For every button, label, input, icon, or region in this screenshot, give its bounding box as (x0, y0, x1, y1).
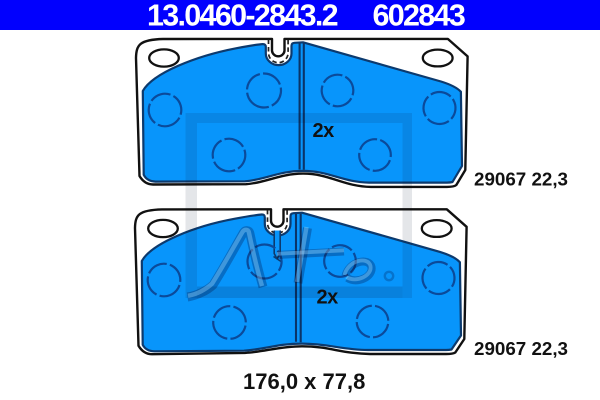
svg-text:176,0 x 77,8: 176,0 x 77,8 (243, 369, 365, 394)
svg-text:602843: 602843 (373, 0, 465, 33)
svg-text:29067 22,3: 29067 22,3 (474, 338, 568, 359)
svg-text:29067 22,3: 29067 22,3 (474, 169, 568, 190)
svg-text:13.0460-2843.2: 13.0460-2843.2 (147, 0, 338, 33)
svg-text:2x: 2x (313, 120, 335, 142)
